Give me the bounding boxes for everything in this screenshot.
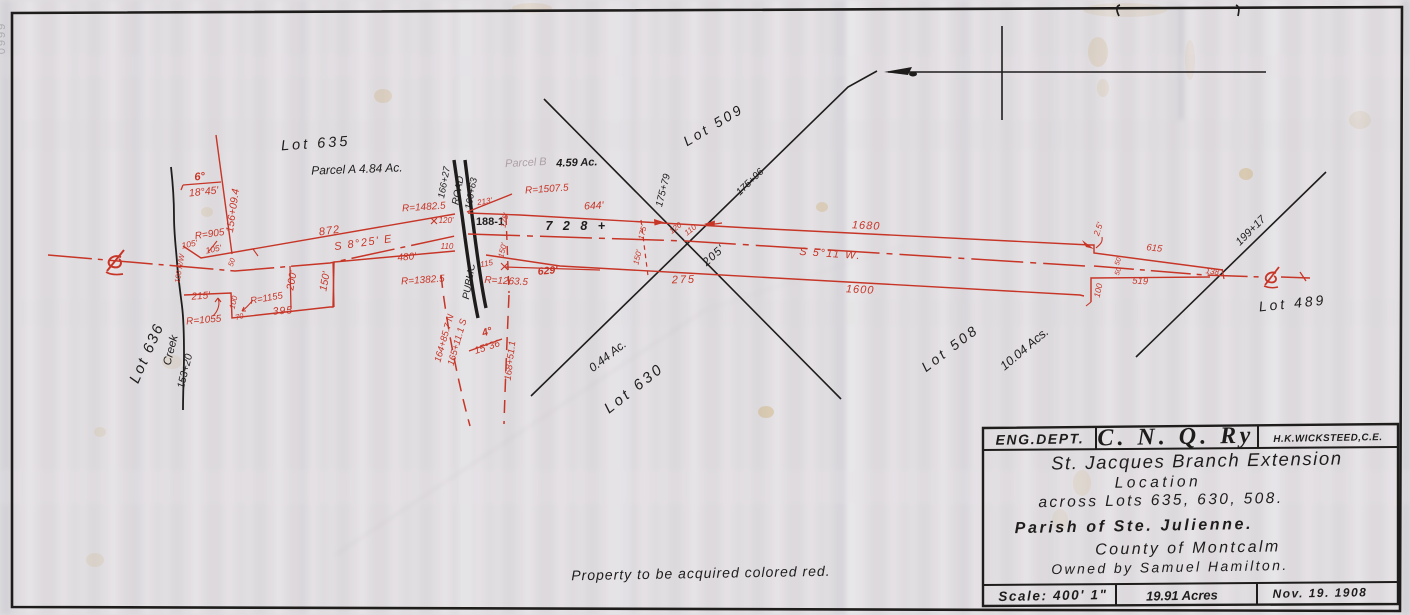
svg-text:R=1263.5: R=1263.5: [484, 275, 529, 288]
svg-text:519: 519: [1132, 275, 1149, 287]
svg-text:0999: 0999: [0, 22, 8, 54]
svg-text:1680: 1680: [852, 219, 881, 232]
svg-text:Nov. 19. 1908: Nov. 19. 1908: [1272, 585, 1367, 601]
svg-text:395: 395: [272, 304, 293, 317]
svg-text:644': 644': [584, 199, 605, 212]
svg-text:H.K.WICKSTEED,C.E.: H.K.WICKSTEED,C.E.: [1273, 432, 1382, 445]
svg-text:6°: 6°: [194, 170, 206, 183]
svg-text:1600: 1600: [846, 283, 875, 296]
svg-text:615: 615: [1146, 242, 1164, 255]
svg-text:4.59 Ac.: 4.59 Ac.: [555, 156, 598, 169]
svg-text:480': 480': [397, 251, 418, 264]
svg-text:110: 110: [441, 242, 454, 251]
svg-text:C. N. Q. Ry: C. N. Q. Ry: [1097, 423, 1254, 452]
svg-text:215': 215': [190, 290, 212, 303]
svg-text:Location: Location: [1114, 473, 1201, 492]
svg-text:19.91 Acres: 19.91 Acres: [1146, 587, 1218, 603]
svg-text:120': 120': [439, 216, 454, 225]
svg-text:138: 138: [1205, 266, 1220, 277]
svg-text:ENG.DEPT.: ENG.DEPT.: [995, 430, 1084, 448]
svg-text:Scale: 400' 1": Scale: 400' 1": [998, 587, 1108, 604]
svg-text:County of Montcalm: County of Montcalm: [1095, 538, 1281, 558]
svg-text:7 2 8 +: 7 2 8 +: [545, 219, 608, 233]
svg-text:629': 629': [537, 264, 558, 278]
svg-text:Parcel B: Parcel B: [505, 156, 547, 170]
svg-text:275: 275: [671, 274, 697, 287]
